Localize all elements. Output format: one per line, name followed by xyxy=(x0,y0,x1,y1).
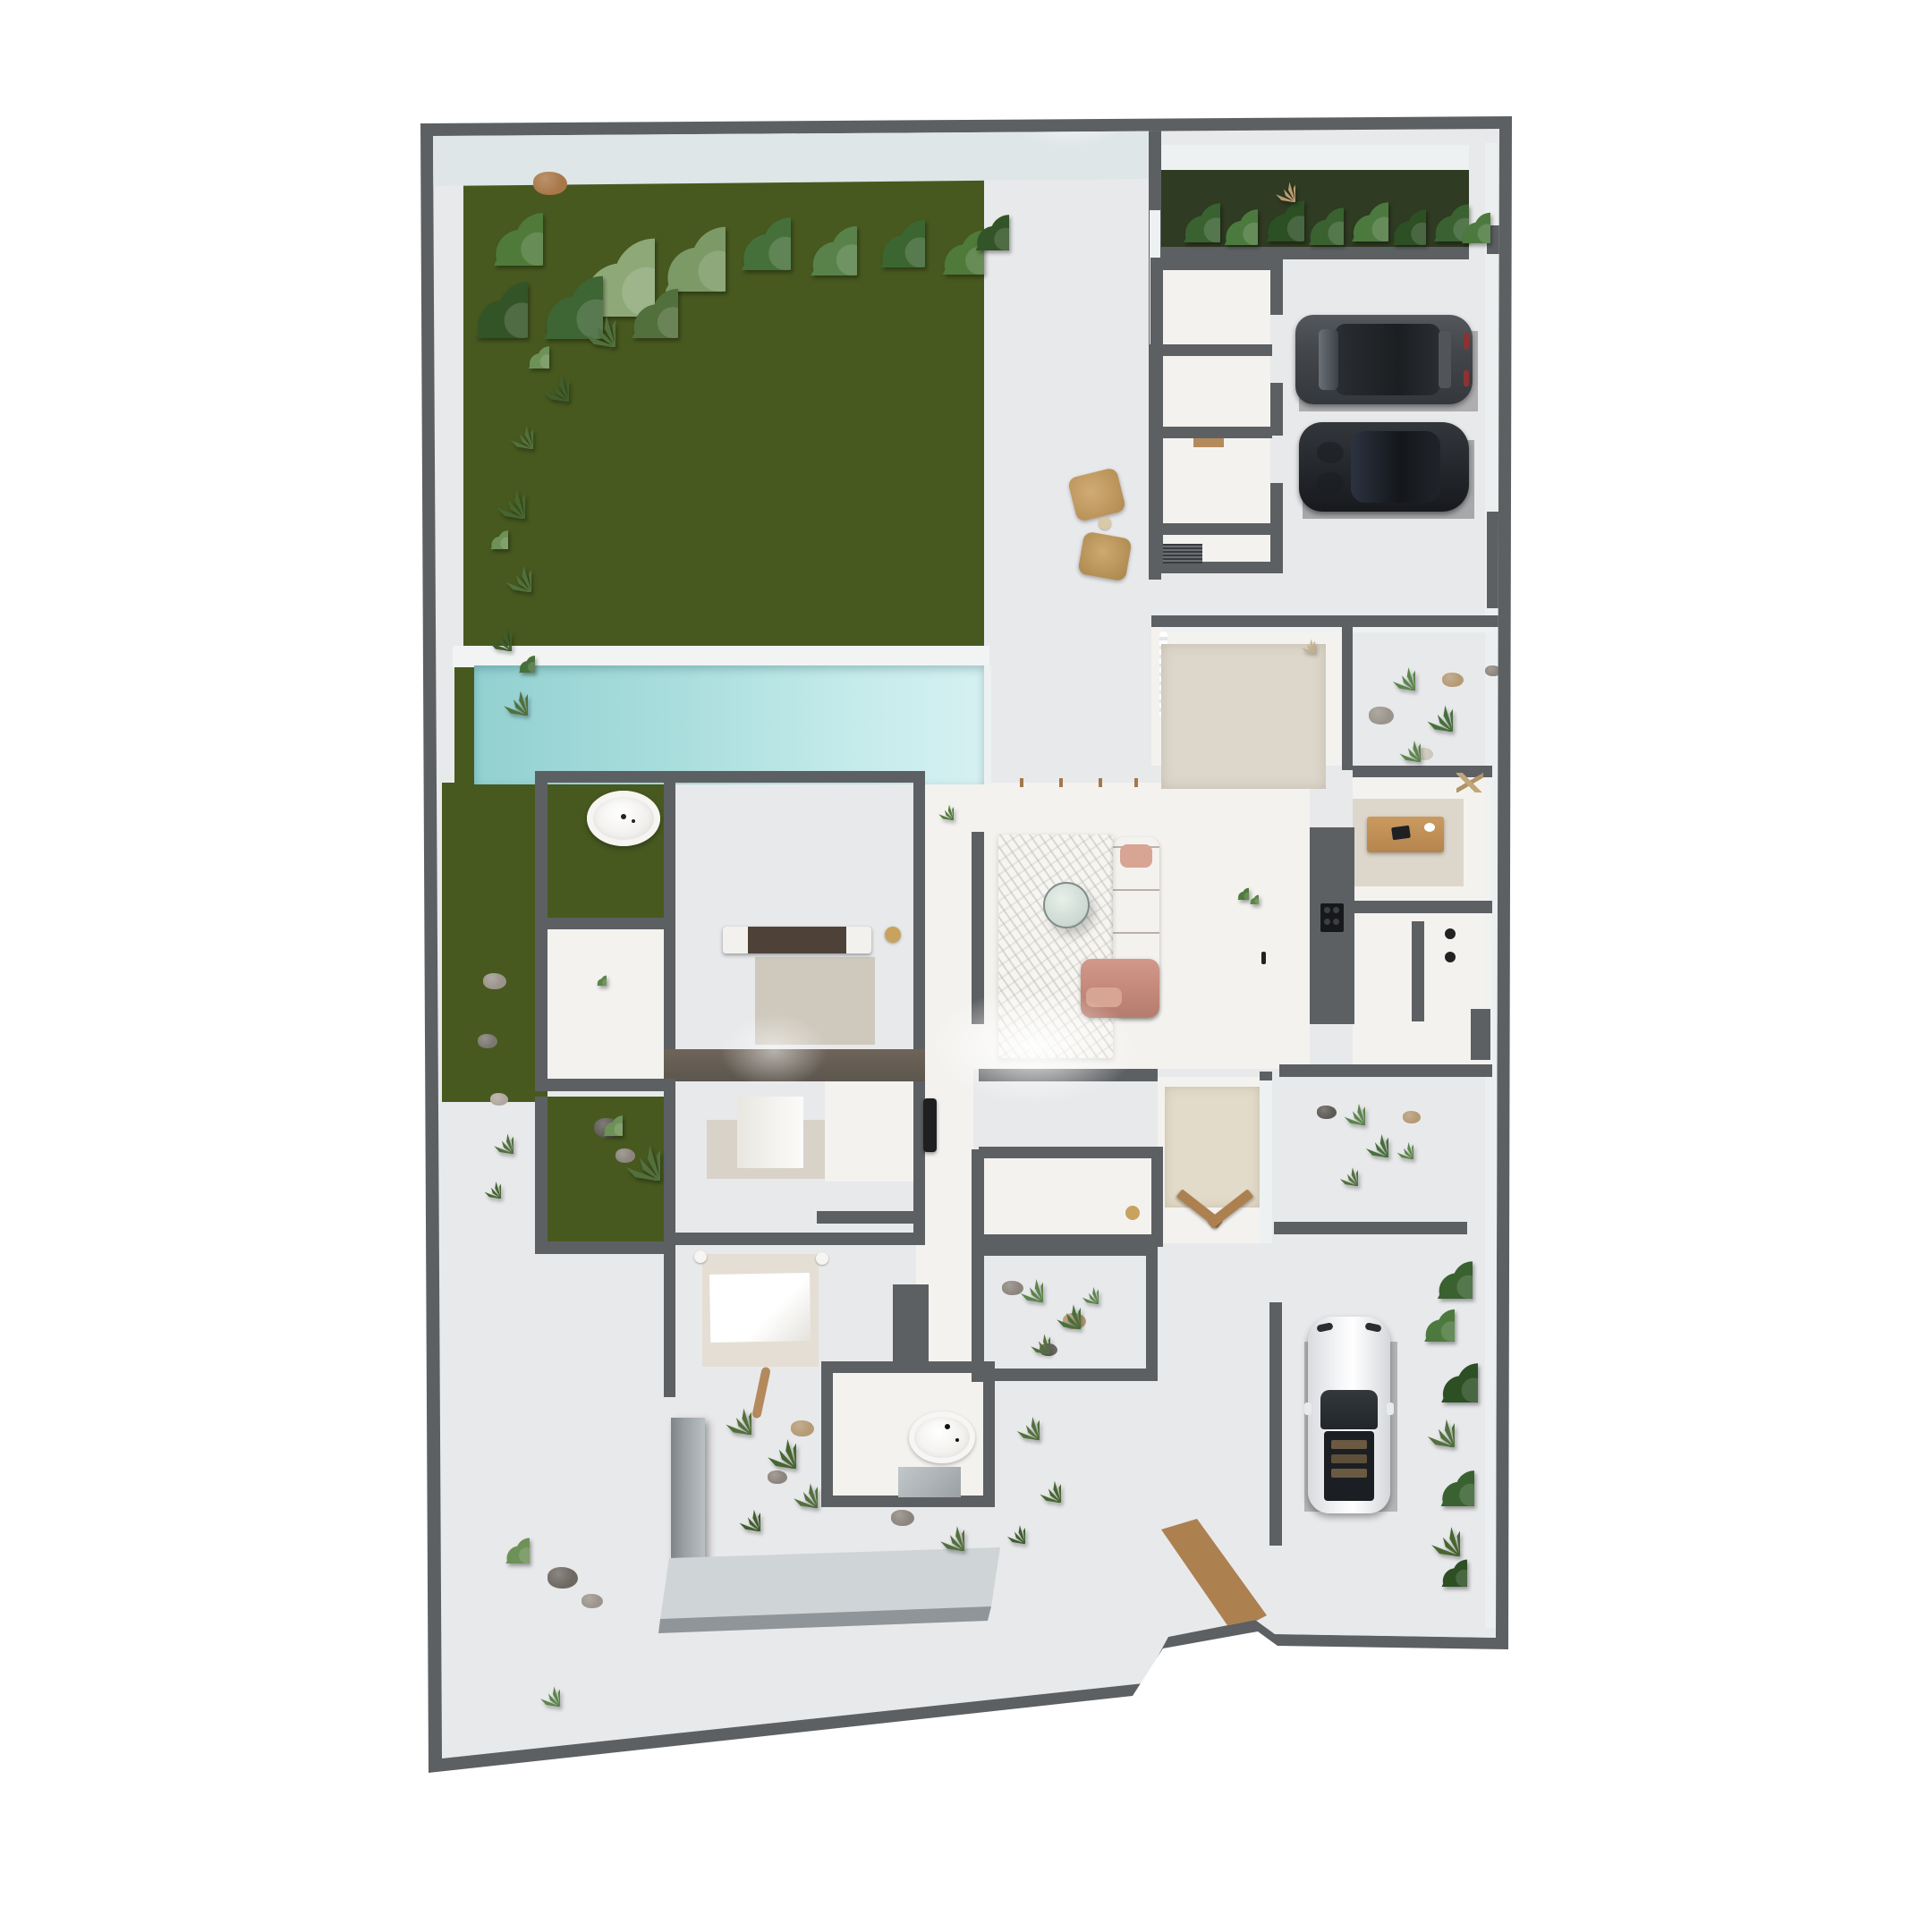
laundry-cabinet xyxy=(1471,1009,1490,1060)
palm-49 xyxy=(1059,1265,1099,1304)
bush-10 xyxy=(410,220,528,338)
utility-wall-right-c xyxy=(1270,483,1283,562)
ensuite2-toilet xyxy=(828,1123,845,1150)
dressing-bottom-wall xyxy=(535,1079,675,1091)
wing-top-wall xyxy=(1151,615,1507,627)
outdoor-bathtub xyxy=(587,791,660,846)
dining-table xyxy=(1192,687,1297,737)
hvac-grille xyxy=(1163,544,1202,563)
hall-wood-floor xyxy=(927,1179,972,1306)
pool-step-5 xyxy=(503,744,637,758)
palm-55 xyxy=(710,1481,760,1531)
bedroom3-closet xyxy=(893,1284,929,1374)
bedroom2-left-wall xyxy=(664,1091,675,1243)
dining-chair-1 xyxy=(1197,660,1222,685)
wing-bottom-wall xyxy=(1279,1064,1492,1077)
bedroom3-bed xyxy=(703,1249,818,1349)
rock-2 xyxy=(483,973,506,989)
kitchen-stool-1 xyxy=(1207,894,1223,910)
palm-60 xyxy=(467,1107,514,1154)
floor-glare-2 xyxy=(993,54,1145,152)
master-left-wall xyxy=(664,783,675,1091)
utility-wall-right-b xyxy=(1270,383,1283,436)
dressing-left-wall xyxy=(535,929,548,1083)
pool-right-edge xyxy=(984,665,991,784)
palm-58 xyxy=(1011,1453,1061,1503)
palm-15 xyxy=(457,451,525,519)
bathroom2-right-wall xyxy=(1151,1147,1163,1247)
master-pouf xyxy=(885,927,901,943)
utility-wall-left xyxy=(1150,258,1163,573)
laundry-sink xyxy=(1247,538,1260,553)
floor-cushion-2 xyxy=(1077,531,1133,582)
door-handle-4 xyxy=(1134,778,1138,787)
dryer xyxy=(1437,946,1464,968)
palm-56 xyxy=(907,1494,964,1551)
bedroom3-side-table-1 xyxy=(694,1250,707,1263)
palm-63 xyxy=(514,1660,560,1707)
pantry-shelves xyxy=(1356,953,1367,1013)
bathroom3-tub xyxy=(909,1411,975,1463)
bush-65 xyxy=(1239,885,1259,904)
palm-41 xyxy=(1283,621,1315,653)
dining-chair-6 xyxy=(1263,747,1288,772)
floor-glare-3 xyxy=(716,1011,832,1091)
door-handle-3 xyxy=(1099,778,1102,787)
sofa-pillow xyxy=(1120,844,1152,868)
bush-21 xyxy=(499,637,535,673)
palm-30 xyxy=(1249,156,1295,202)
master-dresser xyxy=(850,810,875,911)
bush-29 xyxy=(1426,179,1490,243)
driftwood-decor xyxy=(1456,773,1483,792)
dining-court-divider xyxy=(1342,627,1353,770)
bush-19 xyxy=(503,322,549,369)
suv-car xyxy=(1295,315,1473,404)
floor-glare-1 xyxy=(921,984,1145,1109)
white-sedan xyxy=(1308,1317,1390,1513)
freestanding-wall xyxy=(671,1418,705,1577)
palm-48 xyxy=(1004,1308,1050,1354)
palm-court-bottom-wall xyxy=(535,1241,675,1254)
palm-66 xyxy=(918,784,954,820)
wc-vanity xyxy=(1186,449,1238,474)
wardrobe-rack-2 xyxy=(555,982,585,1014)
dressing-lounge-chair xyxy=(614,1017,666,1078)
courtyard-c-bottom-wall xyxy=(982,1368,1158,1381)
utility-divider-2 xyxy=(1163,427,1272,438)
bathroom2-vanity xyxy=(1027,1202,1118,1225)
tub-court-left-wall xyxy=(535,783,548,921)
dining-chair-7 xyxy=(1163,701,1188,726)
bush-20 xyxy=(469,510,508,549)
floor-plan-scene xyxy=(0,0,1927,1932)
site-boundary-wall xyxy=(0,0,1927,1932)
bathroom3-left-wall xyxy=(821,1361,833,1507)
foyer-right-wall xyxy=(1260,1077,1272,1243)
sports-car xyxy=(1299,422,1469,512)
wardrobe-rack-1 xyxy=(555,941,585,973)
palm-12 xyxy=(544,275,615,347)
rock-18 xyxy=(581,1594,603,1608)
tub-court-bottom-wall xyxy=(535,918,675,929)
rock-3 xyxy=(478,1034,497,1048)
ensuite2-vanity xyxy=(861,1086,898,1106)
bush-37 xyxy=(1410,1529,1467,1587)
bathroom3-top-wall xyxy=(821,1361,995,1373)
utility-wall-top xyxy=(1150,258,1283,270)
dining-chair-8 xyxy=(1297,703,1322,728)
door-handle-1 xyxy=(1020,778,1023,787)
bush-67 xyxy=(585,964,607,986)
island-faucet xyxy=(1261,952,1266,964)
bedroom3-left-wall xyxy=(664,1245,675,1397)
bedroom2-bottom-wall xyxy=(664,1233,925,1245)
coffee-table xyxy=(1043,882,1090,928)
desk-paper xyxy=(1424,823,1435,832)
office-chair xyxy=(1387,850,1415,878)
bathroom3-vanity xyxy=(839,1385,871,1453)
dining-chair-4 xyxy=(1195,744,1220,769)
bathroom2-top-wall xyxy=(979,1147,1163,1158)
bathroom3-toilet xyxy=(875,1470,893,1496)
palm-court-left-wall xyxy=(535,1097,548,1254)
master-top-wall xyxy=(664,771,925,783)
bedroom2-slat-screen xyxy=(677,1097,700,1166)
pantry-divider-wall xyxy=(1412,921,1424,1021)
floor-cushion-1 xyxy=(1067,467,1126,522)
palm-14 xyxy=(480,395,533,449)
kitchen-stool-2 xyxy=(1207,924,1223,940)
rock-20 xyxy=(1485,665,1501,676)
patio-ball xyxy=(1099,517,1111,530)
carport-wall xyxy=(1269,1302,1282,1546)
hall-bed3-wall xyxy=(817,1211,915,1224)
bush-62 xyxy=(476,1510,530,1563)
wc-toilet xyxy=(1240,452,1258,479)
utility-divider-3 xyxy=(1163,523,1283,535)
pool-step-4 xyxy=(496,725,626,740)
master-tv-console xyxy=(723,927,871,953)
palm-61 xyxy=(462,1159,501,1199)
palm-59 xyxy=(982,1501,1025,1544)
utility-wall-right-a xyxy=(1270,270,1283,315)
gate-wall-bottom xyxy=(1487,512,1507,608)
tub-court-top-wall xyxy=(535,771,664,783)
courtyard-c-right-wall xyxy=(1146,1245,1158,1381)
utility-rooms-floor xyxy=(1163,270,1270,562)
bathroom2-stool xyxy=(1125,1206,1140,1220)
wc-mirror xyxy=(1193,438,1224,447)
palm-57 xyxy=(986,1386,1040,1440)
bush-8 xyxy=(934,175,1009,250)
dining-chair-2 xyxy=(1231,658,1256,683)
palm-40 xyxy=(1371,712,1421,762)
bathroom2-toilet xyxy=(1099,1168,1118,1193)
kitchen-stool-3 xyxy=(1207,953,1223,970)
palm-45 xyxy=(1374,1120,1413,1159)
palm-54 xyxy=(760,1451,818,1508)
hall-long-wall xyxy=(972,1149,984,1382)
palm-44 xyxy=(1315,1143,1358,1186)
bush-51 xyxy=(580,1093,623,1136)
cooktop xyxy=(1320,903,1344,932)
rock-4 xyxy=(490,1093,508,1106)
washer xyxy=(1437,923,1464,945)
utility-divider-1 xyxy=(1163,344,1272,356)
foyer-right-wall-cap xyxy=(1260,1072,1272,1080)
site-interior xyxy=(0,0,1927,1932)
bedroom3-side-table-2 xyxy=(816,1252,828,1265)
dining-chair-3 xyxy=(1265,657,1290,682)
bathroom3-shower xyxy=(898,1467,961,1497)
laptop xyxy=(1391,826,1411,841)
door-handle-2 xyxy=(1059,778,1063,787)
dining-chair-5 xyxy=(1229,746,1254,771)
rock-17 xyxy=(548,1567,578,1589)
bedroom2-bed xyxy=(714,1093,807,1172)
office-bottom-wall xyxy=(1353,901,1492,913)
master-bed xyxy=(723,839,850,923)
